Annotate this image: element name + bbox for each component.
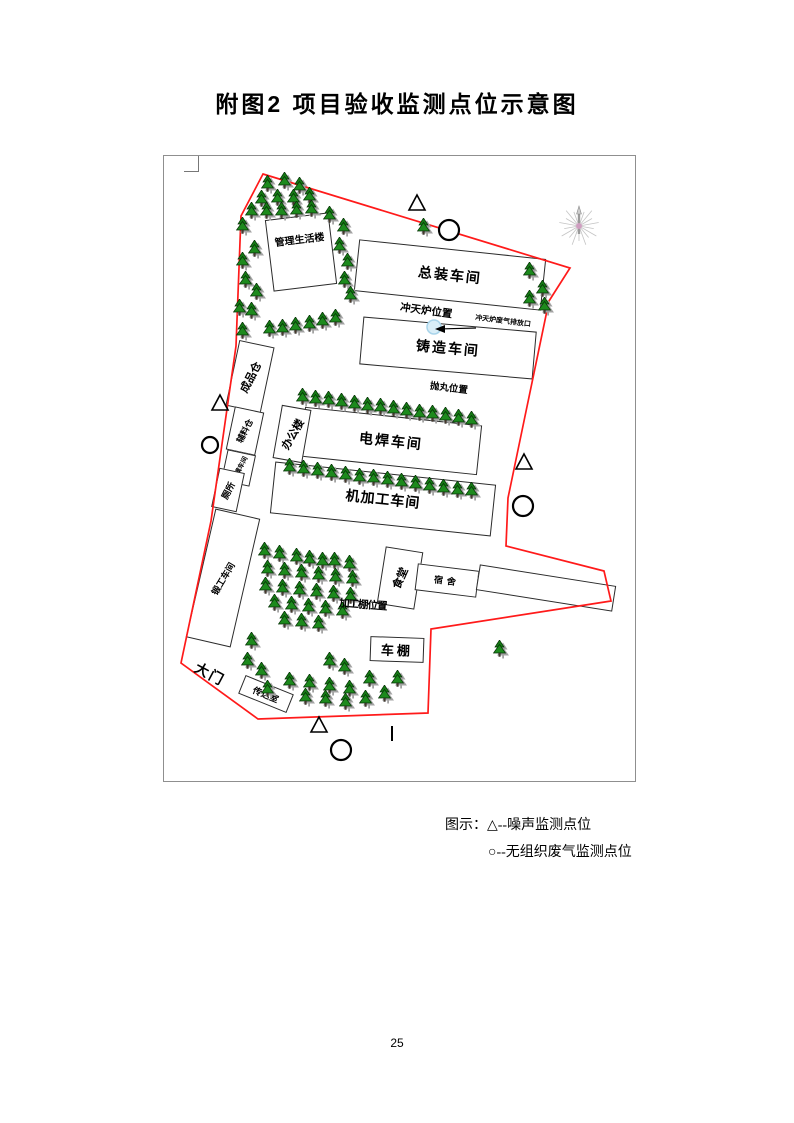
tree-icon <box>304 550 320 569</box>
building-label: 电焊车间 <box>358 428 424 455</box>
tree-icon <box>249 240 265 259</box>
tree-icon <box>269 594 285 613</box>
tree-icon <box>262 560 278 579</box>
noise-monitoring-point-icon <box>516 454 532 469</box>
tree-icon <box>262 175 278 194</box>
tree-icon <box>334 237 350 256</box>
building-welding: 电焊车间 <box>300 407 482 475</box>
tree-icon <box>304 315 320 334</box>
tree-icon <box>260 577 276 596</box>
document-page: 附图2 项目验收监测点位示意图 管理生活楼 总装车间 铸造车间 电焊车间 机加工… <box>0 0 794 1123</box>
tree-icon <box>339 658 355 677</box>
building-label: 锻工车间 <box>208 559 238 597</box>
tree-icon <box>313 615 329 634</box>
tree-icon <box>317 552 333 571</box>
tree-icon <box>296 564 312 583</box>
tree-icon <box>339 271 355 290</box>
building-bike-shed: 车棚 <box>370 636 425 663</box>
tree-icon <box>291 548 307 567</box>
tree-icon <box>286 596 302 615</box>
tree-icon <box>317 312 333 331</box>
tree-icon <box>344 680 360 699</box>
gas-monitoring-point-icon <box>513 496 533 516</box>
tree-icon <box>274 545 290 564</box>
tree-icon <box>494 640 510 659</box>
building-toilet: 厕所 <box>211 468 245 513</box>
tree-icon <box>323 391 339 410</box>
tree-icon <box>277 319 293 338</box>
tree-icon <box>324 677 340 696</box>
tree-icon <box>279 562 295 581</box>
building-label: 铸造车间 <box>415 335 480 361</box>
building-label: 车棚 <box>381 639 414 659</box>
tree-icon <box>342 253 358 272</box>
tree-icon <box>264 320 280 339</box>
building-label: 宿舍 <box>433 572 460 588</box>
tree-icon <box>237 217 253 236</box>
tree-icon <box>256 662 272 681</box>
tree-icon <box>330 309 346 328</box>
scale-tick-mark <box>391 726 393 741</box>
tree-icon <box>338 218 354 237</box>
compass-rose-icon <box>559 206 598 245</box>
tree-icon <box>340 693 356 712</box>
tree-icon <box>379 685 395 704</box>
processing-shed-label: 加工棚位置 <box>339 595 387 613</box>
tree-icon <box>310 390 326 409</box>
tree-icon <box>242 652 258 671</box>
tree-icon <box>294 581 310 600</box>
cupola-position-label: 冲天炉位置 <box>399 299 453 321</box>
tree-icon <box>329 552 345 571</box>
legend-gas-item: ○--无组织废气监测点位 <box>488 845 632 860</box>
tree-icon <box>304 187 320 206</box>
building-label: 总装车间 <box>417 262 483 289</box>
building-management-living: 管理生活楼 <box>265 212 337 291</box>
tree-icon <box>272 189 288 208</box>
noise-monitoring-point-icon <box>409 195 425 210</box>
tree-icon <box>330 568 346 587</box>
tree-icon <box>251 283 267 302</box>
tree-icon <box>296 613 312 632</box>
building-label: 厕所 <box>218 479 238 501</box>
legend-gas-row: ○--无组织废气监测点位 <box>488 839 632 866</box>
shot-blasting-label: 抛丸位置 <box>429 378 468 397</box>
tree-icon <box>246 202 262 221</box>
building-label: 食堂 <box>388 565 412 592</box>
tree-icon <box>313 566 329 585</box>
legend-prefix: 图示： <box>445 818 487 833</box>
tree-icon <box>418 218 434 237</box>
building-label: 办公楼 <box>277 416 307 453</box>
tree-icon <box>256 190 272 209</box>
tree-icon <box>324 652 340 671</box>
tree-icon <box>320 690 336 709</box>
page-number: 25 <box>0 1036 794 1050</box>
building-label: 机加工车间 <box>345 485 422 513</box>
building-final-assembly: 总装车间 <box>354 239 546 310</box>
legend: 图示：△--噪声监测点位 ○--无组织废气监测点位 <box>445 812 632 866</box>
tree-icon <box>320 600 336 619</box>
tree-icon <box>344 555 360 574</box>
tree-icon <box>360 690 376 709</box>
tree-icon <box>336 393 352 412</box>
building-gatehouse: 传达室 <box>238 675 294 713</box>
gas-monitoring-point-icon <box>202 437 218 453</box>
tree-icon <box>304 674 320 693</box>
tree-icon <box>237 252 253 271</box>
building-label: 辅料仓 <box>234 417 256 445</box>
tree-icon <box>288 189 304 208</box>
corner-mark <box>184 156 199 172</box>
tree-icon <box>234 299 250 318</box>
tree-icon <box>277 579 293 598</box>
tree-icon <box>240 271 256 290</box>
building-finished-goods: 成品仓 <box>225 340 274 413</box>
building-auxiliary-material: 辅料仓 <box>226 406 264 455</box>
tree-icon <box>392 670 408 689</box>
tree-icon <box>294 177 310 196</box>
tree-icon <box>441 222 457 241</box>
tree-icon <box>279 172 295 191</box>
tree-icon <box>290 317 306 336</box>
building-label: 成品仓 <box>235 358 264 395</box>
legend-noise-row: 图示：△--噪声监测点位 <box>445 812 632 839</box>
building-forging: 锻工车间 <box>186 509 261 648</box>
noise-monitoring-point-icon <box>311 717 327 732</box>
tree-icon <box>364 670 380 689</box>
tree-icon <box>347 570 363 589</box>
tree-icon <box>246 302 262 321</box>
tree-icon <box>284 672 300 691</box>
building-dormitory-wing <box>476 564 616 611</box>
site-plan-map: 管理生活楼 总装车间 铸造车间 电焊车间 机加工车间 成品仓 辅料仓 木模车间 … <box>163 155 636 782</box>
tree-icon <box>300 688 316 707</box>
gas-monitoring-point-icon <box>439 220 459 240</box>
gas-monitoring-point-icon <box>331 740 351 760</box>
tree-icon <box>297 388 313 407</box>
page-title: 附图2 项目验收监测点位示意图 <box>0 85 794 119</box>
building-dormitory: 宿舍 <box>415 563 480 597</box>
gate-label: 大门 <box>191 658 229 691</box>
building-label: 管理生活楼 <box>274 228 325 249</box>
tree-icon <box>311 583 327 602</box>
tree-icon <box>261 202 277 221</box>
legend-noise-item: △--噪声监测点位 <box>487 818 591 833</box>
tree-icon <box>279 611 295 630</box>
building-label: 传达室 <box>251 683 281 705</box>
tree-icon <box>303 598 319 617</box>
tree-icon <box>259 542 275 561</box>
tree-icon <box>246 632 262 651</box>
tree-icon <box>237 322 253 341</box>
